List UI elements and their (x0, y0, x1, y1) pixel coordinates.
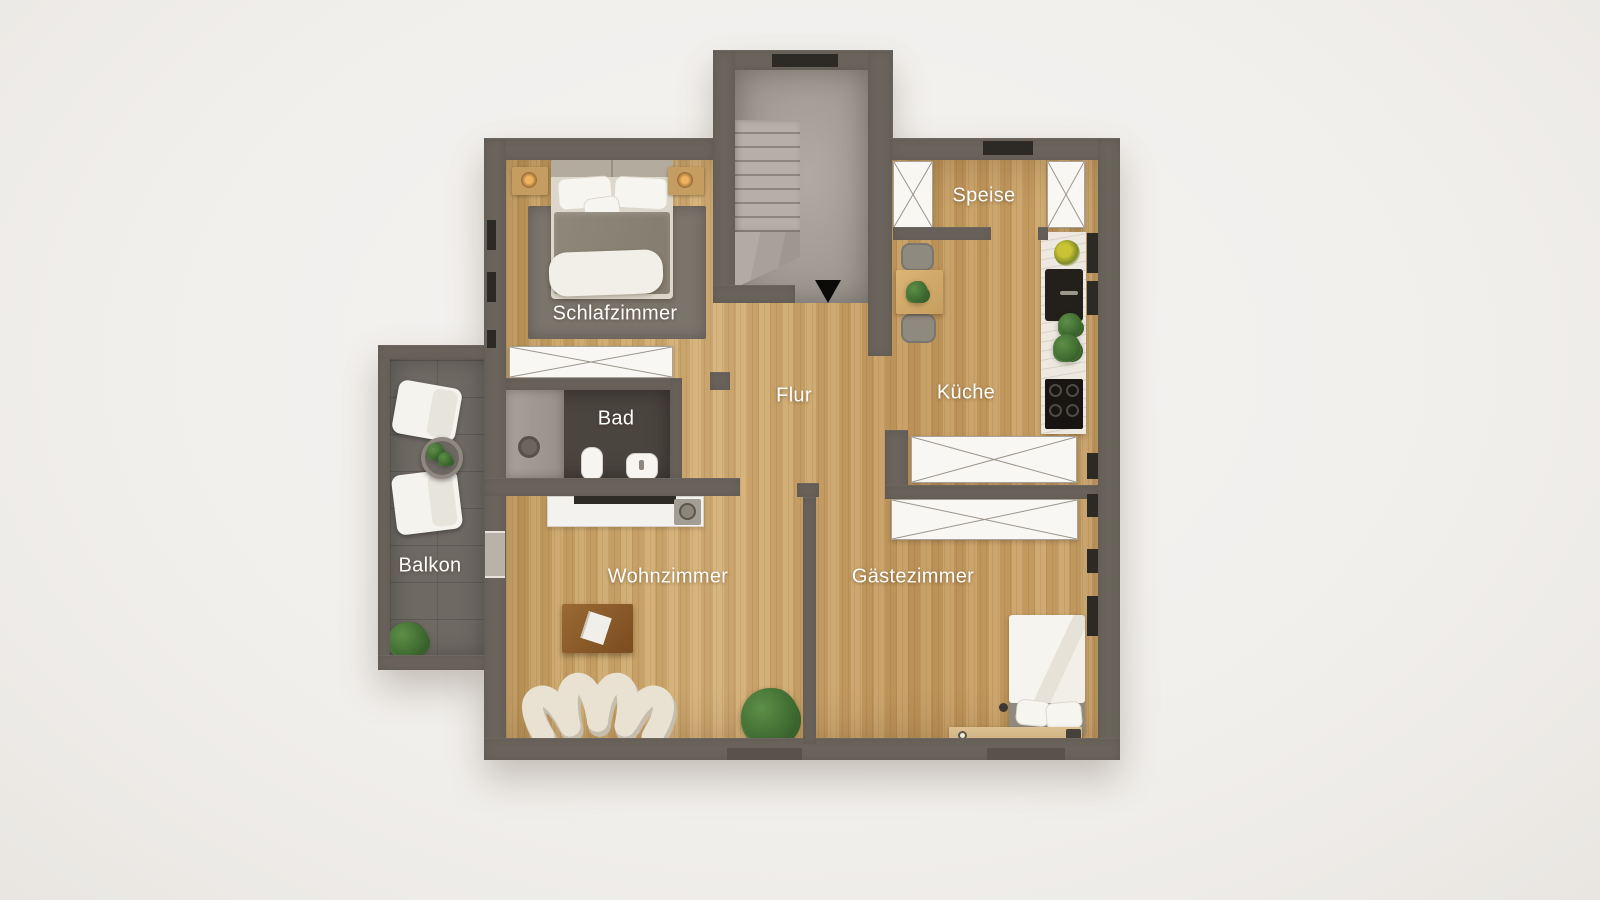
wall-kitchen-guestroom (885, 485, 1098, 499)
lounge-chair-back (427, 472, 458, 527)
window (1087, 453, 1098, 479)
fur-throw (548, 249, 663, 297)
wall-room-divider (803, 497, 816, 744)
wall-pantry-stub (1038, 227, 1048, 240)
sink-faucet (1060, 291, 1078, 295)
room-label-flur: Flur (776, 385, 812, 408)
wall-pantry-bottom (893, 227, 991, 240)
single-bed-duvet (1009, 615, 1085, 703)
shower (506, 390, 564, 478)
lounge-chair-back (426, 388, 458, 439)
room-label-balkon: Balkon (399, 555, 462, 578)
wall-bath-bottom (484, 478, 740, 496)
window (487, 330, 496, 348)
wall-divider-cap (797, 483, 819, 497)
terrace-door-recess (727, 748, 802, 760)
wall-outer-right (1098, 138, 1120, 760)
wardrobe (509, 346, 673, 378)
balcony-door (485, 531, 505, 578)
stairs-down-arrow-icon (815, 280, 841, 303)
window (983, 141, 1033, 155)
chair (901, 243, 934, 271)
lounge-chair (391, 379, 463, 443)
toilet (581, 447, 603, 480)
wardrobe (911, 436, 1077, 483)
pillow (613, 176, 669, 211)
wall-stairwell-right (868, 50, 892, 356)
window (487, 220, 496, 250)
burner (1049, 404, 1062, 417)
burner (1049, 384, 1062, 397)
fruit-bowl (1054, 240, 1080, 266)
tv (574, 496, 676, 504)
wall-balcony-bottom (378, 655, 484, 670)
wall-balcony-left (378, 345, 390, 670)
window (1087, 549, 1098, 573)
record-player-disc (679, 503, 696, 520)
window (1087, 596, 1098, 636)
wall-stairwell-bottom (713, 285, 795, 303)
window (1087, 494, 1098, 517)
burner (1066, 384, 1079, 397)
burner (1066, 404, 1079, 417)
wall-balcony-top (378, 345, 484, 359)
window (1087, 281, 1098, 315)
table-plant (906, 281, 928, 303)
counter-plant (1053, 334, 1081, 362)
modular-sofa (516, 660, 684, 746)
wall-bath-right (670, 378, 682, 478)
room-label-wohnzimmer: Wohnzimmer (608, 566, 728, 589)
staircase (735, 120, 800, 232)
wardrobe (1047, 161, 1085, 228)
terrace-door-recess (987, 748, 1065, 760)
balcony-plant (388, 622, 428, 658)
wall-bath-top (506, 378, 682, 390)
bedside-lamp (999, 703, 1008, 712)
bed-headboard (551, 159, 673, 177)
room-label-schlafzimmer: Schlafzimmer (553, 303, 678, 326)
bedside-lamp (677, 172, 693, 188)
lounge-chair (391, 468, 464, 536)
shower-head (518, 436, 540, 458)
chair (901, 314, 936, 343)
wardrobe (891, 499, 1078, 540)
bedside-lamp (521, 172, 537, 188)
wall-top-left (484, 138, 713, 160)
window (487, 272, 496, 302)
room-label-gaestezimmer: Gästezimmer (852, 566, 974, 589)
washbasin-faucet (639, 460, 644, 470)
window (772, 54, 838, 67)
room-label-bad: Bad (598, 408, 635, 431)
floor-plan: Schlafzimmer Bad Flur Speise Küche Balko… (0, 0, 1600, 900)
wall-bath-door-stub (710, 372, 730, 390)
table-plant (438, 452, 452, 466)
room-label-kueche: Küche (937, 382, 995, 405)
wall-stairwell-left (713, 50, 735, 303)
window (1087, 233, 1098, 273)
room-label-speise: Speise (953, 185, 1016, 208)
wardrobe (893, 161, 933, 228)
